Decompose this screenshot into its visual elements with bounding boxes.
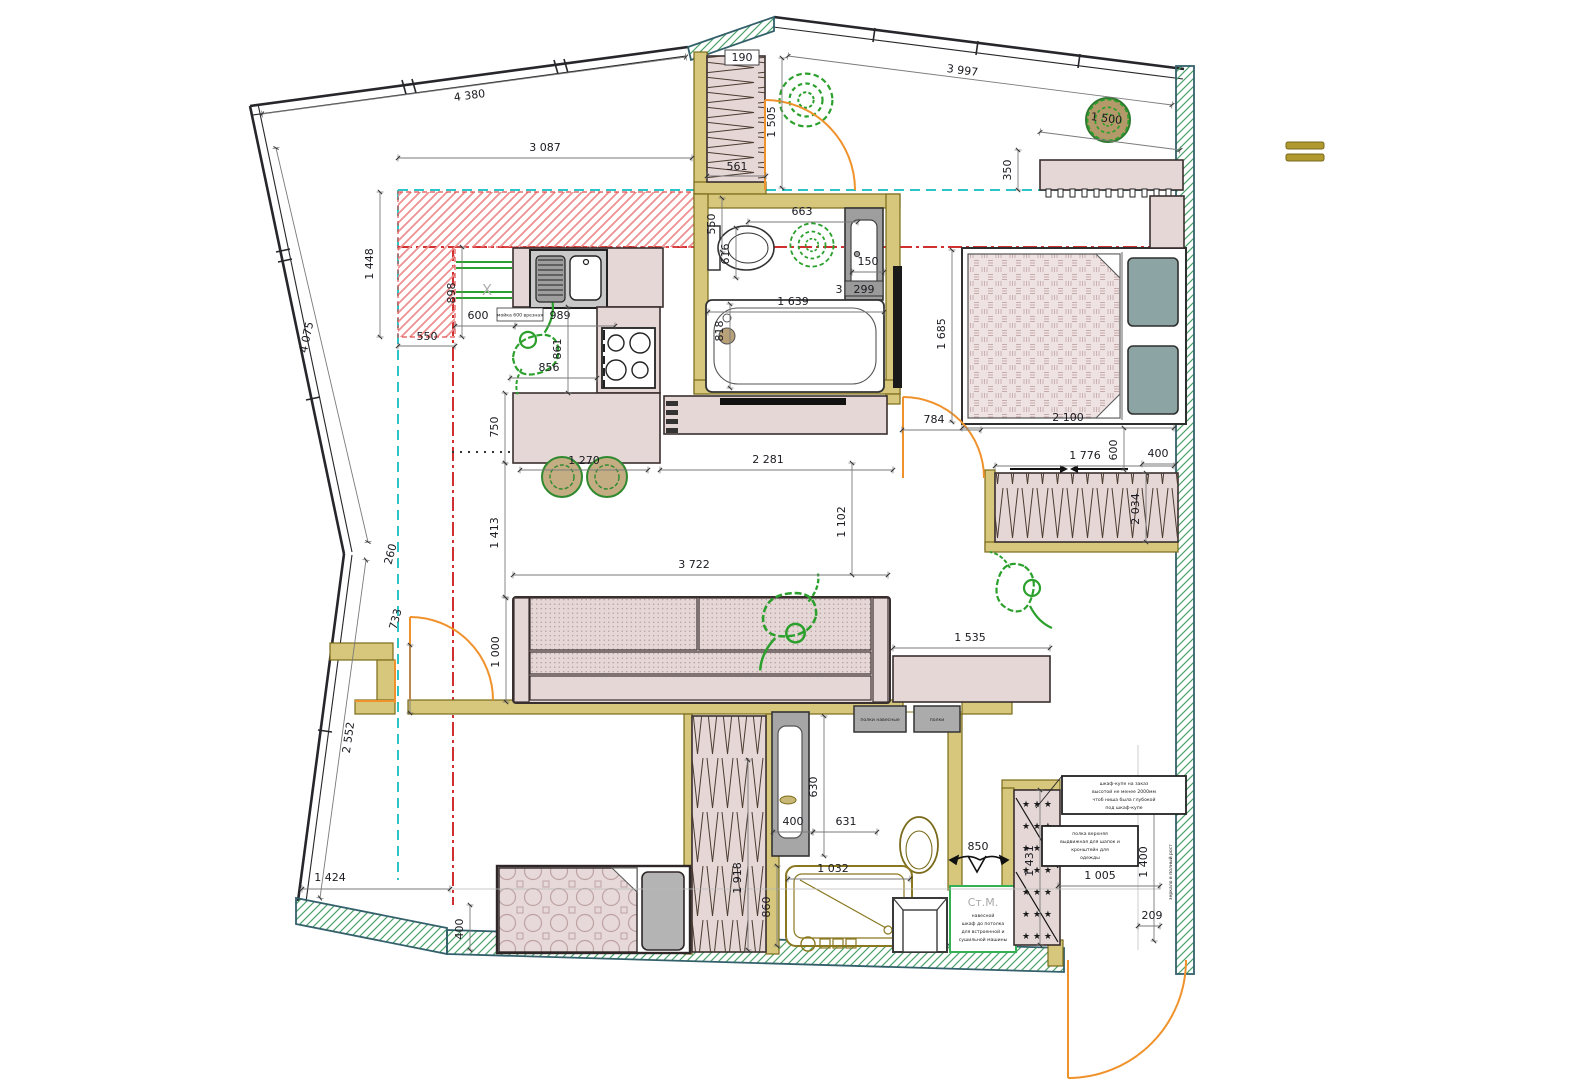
stm-note-line: навесной: [972, 912, 995, 919]
dim-label: 856: [539, 361, 560, 374]
dim-label: 1 000: [489, 636, 502, 668]
kitchen-hob: [602, 328, 655, 388]
stm-note-line: сушильной машины: [959, 936, 1008, 943]
sliding-door-panel: [893, 266, 902, 388]
dim-label: 1 776: [1069, 449, 1101, 462]
tall-cabinet: [772, 712, 809, 856]
dim-label: 750: [488, 417, 501, 438]
entry-shaft: ★ ★ ★ ★ ★ ★ ★ ★ ★ ★ ★ ★ ★ ★ ★ ★ ★ ★ ★ ★ …: [1014, 790, 1060, 945]
dim-label: 616: [719, 244, 732, 265]
dim-label: 989: [550, 309, 571, 322]
dim-label: 3: [836, 283, 843, 296]
dim-label: 1 413: [488, 517, 501, 549]
right-wall-note: зеркало в полный рост: [1167, 844, 1174, 900]
pillow: [1128, 346, 1178, 414]
dim-label: 1 424: [314, 871, 346, 884]
entry-callout-lower: полка верхняя выдвижная для шапок и крон…: [1042, 826, 1138, 866]
dim-label: 1 102: [835, 506, 848, 538]
hall-console: [893, 656, 1050, 702]
washing-machine-box: Ст.М. навесной шкаф до потолка для встро…: [950, 886, 1016, 952]
floor-plan-svg: Ст.М. навесной шкаф до потолка для встро…: [0, 0, 1580, 1080]
dim-label: 209: [1142, 909, 1163, 922]
shaft-stars: ★ ★ ★: [1022, 800, 1052, 810]
dim-label: 1 431: [1023, 845, 1036, 877]
shaft-stars: ★ ★ ★: [1022, 932, 1052, 942]
shaft-stars: ★ ★ ★: [1022, 888, 1052, 898]
dim-label: 861: [551, 339, 564, 360]
dim-label: 1 505: [765, 106, 778, 138]
dim-label: 2 034: [1129, 493, 1142, 525]
kitchen-island: [513, 393, 660, 463]
dim-label: 400: [453, 919, 466, 940]
dim-label: 561: [727, 160, 748, 173]
callout-line: чтоб ниша была глубокой: [1093, 796, 1156, 803]
tv-console: [664, 396, 887, 434]
dim-label: 1 270: [568, 454, 600, 467]
dim-label: 818: [713, 321, 726, 342]
stm-note-line: шкаф до потолка: [962, 921, 1005, 927]
dim-label: 600: [1107, 440, 1120, 461]
callout-line: под шкаф-купе: [1105, 805, 1142, 811]
pillow: [642, 872, 684, 950]
kids-wardrobe: [692, 716, 766, 952]
x-mark: X: [482, 281, 492, 299]
dim-label: 3 087: [529, 141, 561, 154]
dim-label: 1 639: [777, 295, 809, 308]
dim-label: 663: [792, 205, 813, 218]
dim-label: 1 032: [817, 862, 849, 875]
callout-line: одежды: [1080, 856, 1100, 861]
dim-label: 299: [854, 283, 875, 296]
bathtub: [706, 300, 884, 392]
callout-line: высотой не менее 2000мм: [1092, 788, 1156, 795]
dim-label: 860: [760, 897, 773, 918]
dim-label: 2 281: [752, 453, 784, 466]
dim-label: 631: [836, 815, 857, 828]
dim-label: 1 448: [363, 248, 376, 280]
dim-label: 550: [705, 214, 718, 235]
floor-plan-page: Ст.М. навесной шкаф до потолка для встро…: [0, 0, 1580, 1080]
dim-label: 600: [468, 309, 489, 322]
dim-label: 400: [783, 815, 804, 828]
daybed: [497, 866, 690, 953]
kitchen-sink: [530, 250, 607, 308]
shelf-note: полки навесные: [860, 718, 899, 723]
dim-label: 898: [445, 283, 458, 304]
dim-label: 190: [732, 51, 753, 64]
toilet-2: [900, 817, 938, 873]
callout-line: полка верхняя: [1072, 832, 1108, 837]
dim-label: 1 535: [954, 631, 986, 644]
dim-label: 1 685: [935, 318, 948, 350]
stm-note-line: для встроенной и: [961, 928, 1004, 935]
double-bed: [962, 248, 1186, 424]
shelf-note: полки: [930, 718, 945, 723]
dim-label: 1 005: [1084, 869, 1116, 882]
callout-line: выдвижная для шапок и: [1060, 840, 1120, 845]
dim-label: 550: [417, 330, 438, 343]
sink-note: мойка 600 врезная: [497, 312, 543, 319]
dim-label: 2 100: [1052, 411, 1084, 424]
dim-label: 850: [968, 840, 989, 853]
dim-label: 350: [1001, 160, 1014, 181]
callout-line: шкаф-купе на заказ: [1100, 781, 1149, 787]
washing-machine-label: Ст.М.: [968, 896, 999, 909]
bedroom-wardrobe: [995, 465, 1178, 542]
bedside-strip: [1150, 196, 1184, 248]
sofa: [513, 597, 890, 703]
dim-label: 1 918: [731, 862, 744, 894]
shaft-stars: ★ ★ ★: [1022, 910, 1052, 920]
dim-label: 1 400: [1137, 846, 1150, 878]
washer-niche: [893, 898, 947, 952]
dim-label: 150: [858, 255, 879, 268]
dim-label: 400: [1148, 447, 1169, 460]
dim-label: 784: [924, 413, 945, 426]
dim-label: 630: [807, 777, 820, 798]
dim-label: 3 722: [678, 558, 710, 571]
pillow: [1128, 258, 1178, 326]
callout-line: кронштейн для: [1071, 846, 1109, 853]
